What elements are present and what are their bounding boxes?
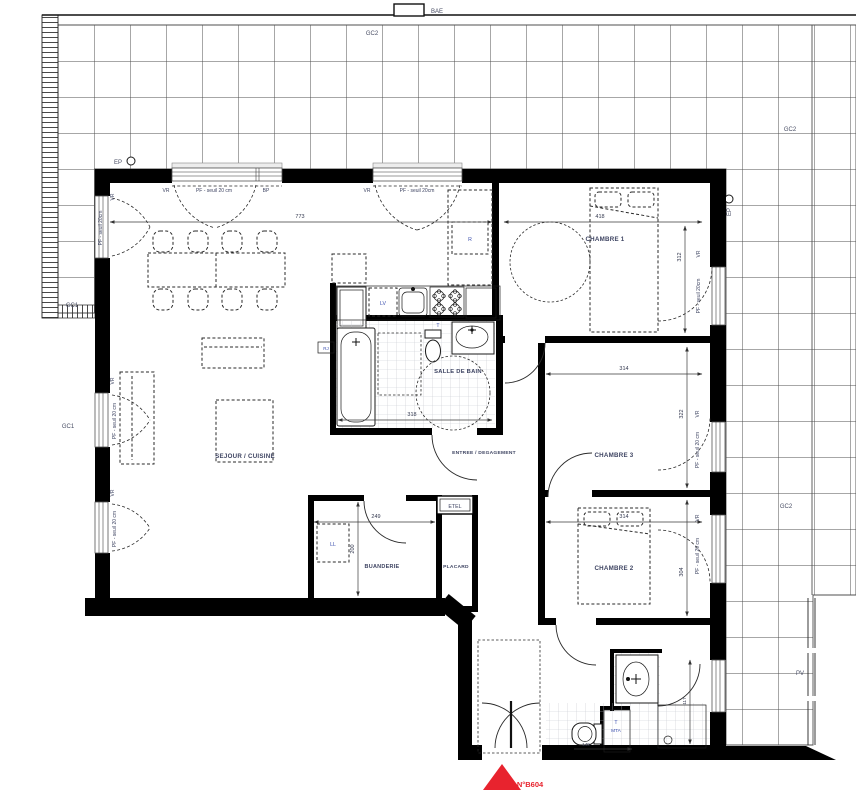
pf-label: PF - seuil 20 cm	[695, 538, 701, 574]
ep-label: EP	[727, 208, 733, 216]
kitchen-base-cabinet	[466, 288, 496, 318]
window-sejour-west-1: VR PF - seuil 20cm	[95, 193, 150, 258]
rj-label: RJ	[323, 346, 329, 351]
bp-label: BP	[263, 188, 270, 194]
kitchen-sink	[399, 287, 427, 316]
dim-salle-de-bain-width: 318	[407, 412, 416, 418]
mta-label: MTA	[611, 728, 622, 734]
pillow	[584, 512, 610, 526]
entrance-door	[478, 640, 540, 753]
dim-buanderie-width: 249	[371, 514, 380, 520]
unit-marker: N°B604	[483, 764, 544, 790]
ep-drain-icon	[725, 195, 733, 203]
bed-chambre2	[578, 508, 650, 604]
chair	[257, 231, 277, 252]
gc2-label: GC2	[780, 504, 793, 510]
room-label-chambre2: CHAMBRE 2	[594, 565, 633, 572]
vr-label: VR	[364, 188, 371, 194]
dim-chambre1-depth: 312	[677, 252, 683, 261]
kitchen-upper-cabinet	[332, 254, 366, 283]
vr-label: VR	[110, 193, 116, 200]
entrance-vestibule-outline	[478, 640, 540, 753]
pf-label: PF - seuil 20cm	[400, 188, 435, 194]
chair	[257, 289, 277, 310]
terrace-edge-hatch	[42, 15, 58, 318]
gc1-label: GC1	[66, 303, 79, 309]
pf-label: PF - seuil 20 cm	[112, 403, 118, 439]
room-label-placard: PLACARD	[443, 564, 469, 570]
ep-drain-icon	[127, 157, 135, 165]
unit-number: N°B604	[517, 780, 544, 789]
salle-eau-floor-tiles	[546, 703, 710, 745]
vr-label: VR	[696, 250, 702, 257]
pf-label: PF - seuil 20cm	[696, 279, 702, 314]
dim-chambre1-width: 418	[595, 214, 604, 220]
ep-label: EP	[114, 160, 122, 166]
placard: ETEL PLACARD	[437, 496, 473, 570]
dim-wc-width: 149	[582, 742, 590, 747]
vr-label: VR	[695, 514, 701, 521]
chair	[188, 231, 208, 252]
vr-label: VR	[110, 489, 116, 496]
chair	[153, 231, 173, 252]
burner-icon	[433, 303, 446, 316]
burner-icon	[433, 290, 446, 303]
cooktop	[430, 287, 464, 317]
pv-label: PV	[796, 671, 804, 677]
door-arc-chambre2	[556, 625, 596, 665]
room-label-entree: ENTREE / DEGAGEMENT	[452, 450, 516, 456]
pillow	[595, 192, 621, 207]
bae-label: BAE	[431, 9, 443, 15]
window-salle-eau-east	[712, 660, 725, 712]
chair	[222, 231, 242, 252]
washbasin	[616, 655, 658, 703]
floor-plan-drawing: BAE EP EP GC2 GC2 GC2 GC1 GC1 PV	[0, 0, 856, 800]
gc2-label: GC2	[366, 31, 379, 37]
room-label-sejour: SEJOUR / CUISINE	[215, 453, 275, 460]
dim-chambre3-width: 314	[619, 366, 628, 372]
chair	[188, 289, 208, 310]
gc2-label: GC2	[784, 127, 797, 133]
dim-chambre2-depth: 304	[679, 567, 685, 576]
entrance-marker-triangle	[483, 764, 521, 790]
dim-chambre3-depth: 322	[679, 409, 685, 418]
door-arc-chambre3	[548, 453, 592, 497]
pf-label: PF - seuil 20 cm	[112, 511, 118, 547]
bed-chambre1	[590, 188, 658, 332]
door-arc-salle-eau	[658, 664, 700, 706]
bae-box	[394, 4, 424, 16]
vr-label: VR	[695, 410, 701, 417]
room-label-salle-de-bain: SALLE DE BAIN	[434, 369, 482, 375]
room-label-buanderie: BUANDERIE	[365, 564, 400, 570]
vr-label: VR	[163, 188, 170, 194]
washer-label: LL	[330, 542, 336, 548]
toilet	[425, 330, 441, 362]
floor-plan: BAE EP EP GC2 GC2 GC2 GC1 GC1 PV	[0, 0, 856, 800]
fridge-label: R	[468, 237, 472, 243]
chair	[153, 289, 173, 310]
pf-label: PF - seuil 20 cm	[695, 432, 701, 468]
terrace-parapet	[726, 746, 836, 760]
washbasin	[452, 322, 494, 354]
pf-label: PF - seuil 20cm	[98, 211, 104, 246]
pillow	[628, 192, 654, 207]
gc1-label: GC1	[62, 424, 75, 430]
pf-label: PF - seuil 20 cm	[196, 188, 232, 194]
dim-salle-eau-depth: 117	[682, 697, 687, 705]
door-arc-salle-de-bain	[432, 435, 477, 480]
window-chambre2-east: VR PF - seuil 20 cm	[658, 514, 725, 583]
window-sejour-north-1: VR PF - seuil 20 cm BP	[163, 163, 282, 228]
burner-icon	[449, 290, 462, 303]
window-sejour-north-2: VR PF - seuil 20cm	[364, 163, 462, 230]
turning-circle	[510, 222, 590, 302]
chair	[222, 289, 242, 310]
dim-buanderie-depth: 200	[350, 544, 356, 553]
dim-sejour-width: 773	[295, 214, 304, 220]
room-label-chambre3: CHAMBRE 3	[594, 452, 633, 459]
etel-label: ETEL	[448, 504, 461, 510]
dim-chambre2-width: 314	[619, 514, 628, 520]
dishwasher-label: LV	[380, 301, 386, 307]
bathtub	[337, 328, 375, 426]
room-label-chambre1: CHAMBRE 1	[585, 236, 624, 243]
burner-icon	[449, 303, 462, 316]
sofa-horizontal	[202, 338, 264, 368]
vr-label: VR	[110, 377, 116, 384]
sofa-vertical	[120, 372, 154, 464]
windows: VR PF - seuil 20 cm BP VR PF - seuil 20c…	[95, 163, 725, 712]
dining-table	[148, 231, 285, 310]
